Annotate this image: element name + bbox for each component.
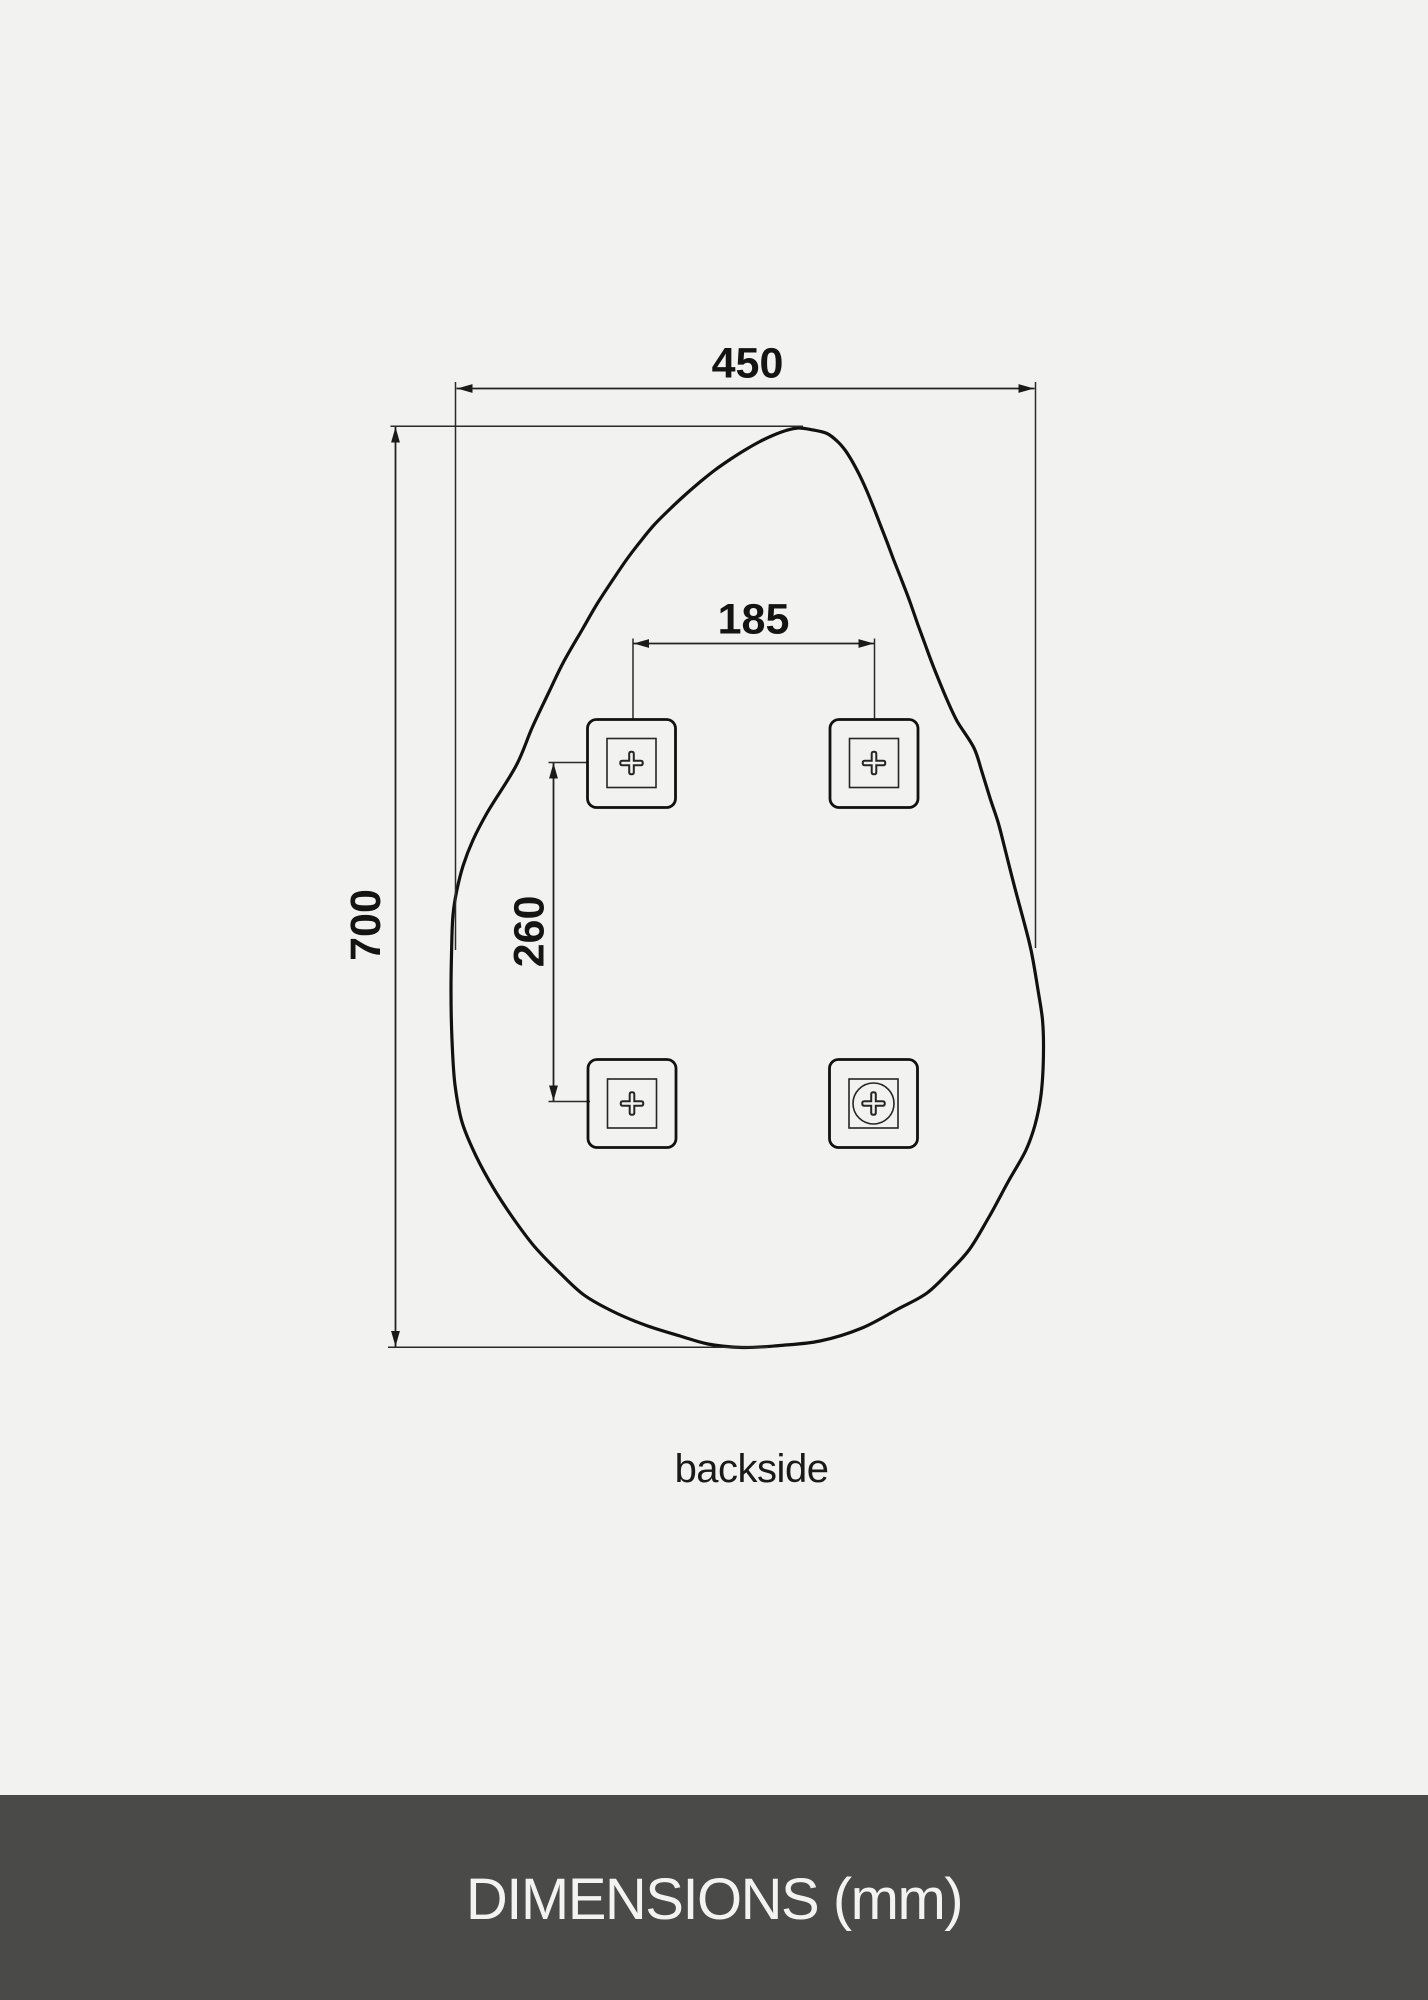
- svg-text:450: 450: [712, 340, 784, 388]
- svg-text:DIMENSIONS (mm): DIMENSIONS (mm): [466, 1867, 962, 1932]
- svg-text:backside: backside: [675, 1447, 829, 1491]
- svg-text:700: 700: [342, 889, 390, 961]
- svg-text:260: 260: [506, 896, 554, 968]
- svg-text:185: 185: [718, 596, 790, 644]
